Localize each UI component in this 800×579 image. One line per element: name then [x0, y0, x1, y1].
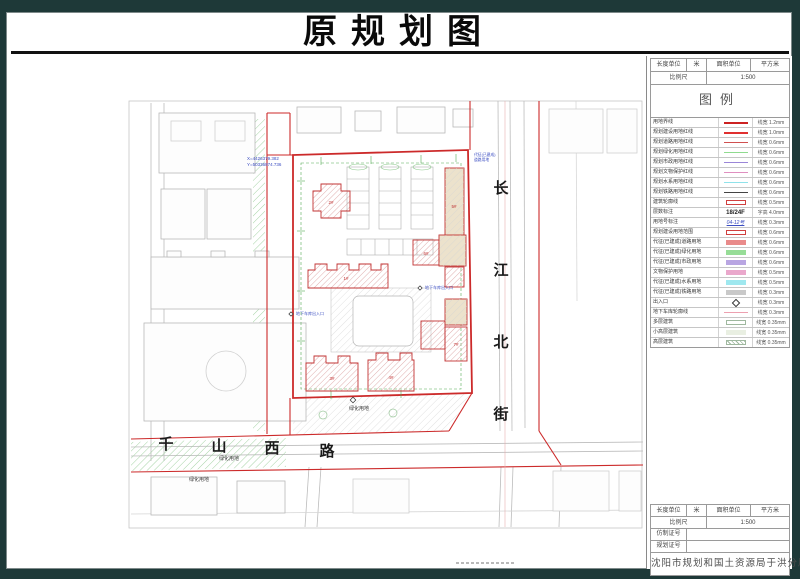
legend-row-label: 高层建筑 — [651, 338, 719, 347]
legend-row: 代征(已建成)市政用地线宽 0.6mm — [651, 258, 789, 268]
legend-symbol — [719, 148, 753, 157]
length-unit-label: 长度单位 — [651, 505, 687, 517]
cert2-label: 规划证号 — [651, 541, 687, 552]
legend-row-value: 线宽 0.6mm — [753, 229, 789, 236]
legend-row-value: 线宽 0.6mm — [753, 239, 789, 246]
street-char: 路 — [319, 442, 335, 460]
legend-row: 规划水系用地红线线宽 0.6mm — [651, 178, 789, 188]
area-unit-value: 平方米 — [751, 59, 789, 71]
legend-row-value: 线宽 1.0mm — [753, 129, 789, 136]
legend-row-value: 线宽 0.6mm — [753, 249, 789, 256]
legend-row-value: 线宽 0.35mm — [753, 329, 789, 336]
legend-row-label: 代征(已建成)道路用地 — [651, 238, 719, 247]
scale-label: 比例尺 — [651, 517, 707, 529]
legend-row: 用地界线线宽 1.2mm — [651, 118, 789, 128]
legend-row-label: 地下车库轮廓线 — [651, 308, 719, 317]
legend-symbol — [719, 288, 753, 297]
legend-row-label: 代征(已建成)绿化用地 — [651, 248, 719, 257]
legend-row: 代征(已建成)绿化用地线宽 0.6mm — [651, 248, 789, 258]
legend-row: 规划市政用地红线线宽 0.6mm — [651, 158, 789, 168]
legend-row: 规划建设用地红线线宽 1.0mm — [651, 128, 789, 138]
building-label: 2# — [328, 200, 334, 205]
street-char: 千 — [158, 436, 173, 453]
legend-symbol — [719, 248, 753, 257]
length-unit-value: 米 — [687, 505, 707, 517]
legend-rows: 用地界线线宽 1.2mm规划建设用地红线线宽 1.0mm规划道路用地红线线宽 0… — [651, 118, 789, 347]
legend-table: 长度单位 米 面积单位 平方米 比例尺 1:500 图例 用地界线线宽 1.2m… — [650, 58, 790, 348]
legend-symbol — [719, 138, 753, 147]
legend-symbol — [719, 268, 753, 277]
legend-row-value: 线宽 0.6mm — [753, 139, 789, 146]
cert1-row: 仿制证号 — [651, 529, 789, 541]
legend-row-value: 线宽 0.6mm — [753, 179, 789, 186]
green-space-label: 绿化用地 — [219, 455, 239, 462]
building-label: 5# — [451, 204, 457, 209]
scale-row: 比例尺 1:500 — [651, 72, 789, 85]
legend-row-value: 线宽 0.5mm — [753, 279, 789, 286]
building-label: 3# — [329, 376, 335, 381]
building-label: 6# — [423, 251, 429, 256]
legend-row-label: 规划铁路用地红线 — [651, 188, 719, 197]
units-header-row-bottom: 长度单位 米 面积单位 平方米 — [651, 505, 789, 517]
legend-row: 代征(已建成)水系用地线宽 0.5mm — [651, 278, 789, 288]
legend-symbol — [719, 328, 753, 337]
legend-symbol — [719, 118, 753, 127]
legend-symbol — [719, 228, 753, 237]
fine-print-note — [456, 562, 516, 564]
legend-row: 小高层建筑线宽 0.35mm — [651, 328, 789, 338]
legend-symbol — [719, 178, 753, 187]
legend-row-value: 线宽 1.2mm — [753, 119, 789, 126]
length-unit-value: 米 — [687, 59, 707, 71]
legend-row-label: 用地号标注 — [651, 218, 719, 227]
legend-row-label: 规划绿化用地红线 — [651, 148, 719, 157]
road-annotation: 道路用地 — [474, 157, 489, 162]
legend-symbol — [719, 128, 753, 137]
legend-row: 出入口线宽 0.3mm — [651, 298, 789, 308]
legend-row-value: 线宽 0.6mm — [753, 169, 789, 176]
legend-row: 规划建设用地范围线宽 0.6mm — [651, 228, 789, 238]
legend-symbol — [719, 338, 753, 347]
legend-row-label: 规划道路用地红线 — [651, 138, 719, 147]
legend-row-value: 线宽 0.3mm — [753, 219, 789, 226]
units-header-row: 长度单位 米 面积单位 平方米 — [651, 59, 789, 72]
legend-row-value: 字高 4.0mm — [753, 209, 789, 216]
legend-row-value: 线宽 0.35mm — [753, 319, 789, 326]
coordinate-x: X=4426379.382 — [247, 156, 279, 161]
legend-row: 层数标注18/24F字高 4.0mm — [651, 208, 789, 218]
legend-row-label: 规划文物保护红线 — [651, 168, 719, 177]
scale-value: 1:500 — [707, 517, 789, 529]
legend-row-label: 规划水系用地红线 — [651, 178, 719, 187]
legend-row: 规划铁路用地红线线宽 0.6mm — [651, 188, 789, 198]
area-unit-value: 平方米 — [751, 505, 789, 517]
legend-row: 代征(已建成)铁路用地线宽 0.3mm — [651, 288, 789, 298]
legend-row-value: 线宽 0.6mm — [753, 189, 789, 196]
street-char: 西 — [264, 440, 279, 457]
legend-symbol: 18/24F — [719, 208, 753, 217]
legend-symbol — [719, 188, 753, 197]
legend-row-label: 代征(已建成)市政用地 — [651, 258, 719, 267]
green-space-label: 绿化用地 — [349, 405, 369, 412]
street-char: 江 — [493, 261, 508, 279]
legend-symbol — [719, 278, 753, 287]
street-char: 山 — [211, 438, 226, 455]
legend-row-value: 线宽 0.5mm — [753, 199, 789, 206]
legend-symbol — [719, 158, 753, 167]
legend-row: 用地号标注04-12号线宽 0.3mm — [651, 218, 789, 228]
courtyard — [331, 288, 431, 352]
legend-row-label: 代征(已建成)水系用地 — [651, 278, 719, 287]
legend-row: 高层建筑线宽 0.35mm — [651, 338, 789, 347]
legend-row-label: 文物保护用地 — [651, 268, 719, 277]
legend-row-label: 代征(已建成)铁路用地 — [651, 288, 719, 297]
legend-row-label: 层数标注 — [651, 208, 719, 217]
site-plan-map: 2# 1# 3# 4# 5# 6# 7# X=4426379.382 Y=503… — [126, 97, 648, 545]
title-underline — [11, 51, 789, 54]
legend-row-value: 线宽 0.3mm — [753, 289, 789, 296]
legend-row-value: 线宽 0.5mm — [753, 269, 789, 276]
length-unit-label: 长度单位 — [651, 59, 687, 71]
green-space-label: 绿化用地 — [189, 476, 209, 483]
legend-row: 地下车库轮廓线线宽 0.3mm — [651, 308, 789, 318]
legend-symbol — [719, 308, 753, 317]
coordinate-y: Y=50336874.736 — [247, 162, 282, 167]
legend-symbol — [719, 168, 753, 177]
legend-symbol — [719, 258, 753, 267]
area-unit-label: 面积单位 — [707, 59, 751, 71]
drawing-sheet: 原规划图 — [6, 12, 792, 569]
legend-symbol: 04-12号 — [719, 218, 753, 227]
legend-row: 规划绿化用地红线线宽 0.6mm — [651, 148, 789, 158]
legend-row: 多层建筑线宽 0.35mm — [651, 318, 789, 328]
cert1-label: 仿制证号 — [651, 529, 687, 540]
legend-row-value: 线宽 0.35mm — [753, 339, 789, 346]
scale-label: 比例尺 — [651, 72, 707, 84]
legend-row: 规划文物保护红线线宽 0.6mm — [651, 168, 789, 178]
legend-symbol — [719, 238, 753, 247]
road-annotation: 代征(已建成) — [474, 152, 496, 157]
building-label: 7# — [453, 342, 459, 347]
area-unit-label: 面积单位 — [707, 505, 751, 517]
legend-row-label: 小高层建筑 — [651, 328, 719, 337]
scale-row-bottom: 比例尺 1:500 — [651, 517, 789, 529]
legend-row-label: 建筑轮廓线 — [651, 198, 719, 207]
legend-row-label: 规划建设用地范围 — [651, 228, 719, 237]
legend-symbol — [719, 198, 753, 207]
street-char: 街 — [492, 405, 508, 423]
building-label: 1# — [343, 276, 349, 281]
cert2-row: 规划证号 — [651, 541, 789, 553]
legend-panel: 长度单位 米 面积单位 平方米 比例尺 1:500 图例 用地界线线宽 1.2m… — [646, 56, 792, 569]
street-char: 长 — [493, 179, 509, 197]
legend-row-label: 用地界线 — [651, 118, 719, 127]
legend-row-value: 线宽 0.6mm — [753, 149, 789, 156]
legend-row: 建筑轮廓线线宽 0.5mm — [651, 198, 789, 208]
legend-row-value: 线宽 0.6mm — [753, 159, 789, 166]
legend-title: 图例 — [651, 85, 789, 118]
legend-row-value: 线宽 0.3mm — [753, 309, 789, 316]
scale-value: 1:500 — [707, 72, 789, 84]
legend-row-label: 出入口 — [651, 298, 719, 307]
street-char: 北 — [493, 334, 508, 351]
legend-row-label: 规划建设用地红线 — [651, 128, 719, 137]
garage-entry-label: 地下车库出入口 — [296, 310, 324, 316]
legend-row-label: 多层建筑 — [651, 318, 719, 327]
page-title: 原规划图 — [303, 12, 495, 52]
agency-name: 沈阳市规划和国土资源局于洪分局 — [651, 553, 789, 575]
legend-row: 代征(已建成)道路用地线宽 0.6mm — [651, 238, 789, 248]
street-name-changjiang-north: 长 江 北 街 — [492, 179, 509, 423]
legend-row: 文物保护用地线宽 0.5mm — [651, 268, 789, 278]
title-band: 原规划图 — [7, 13, 791, 50]
legend-row-value: 线宽 0.6mm — [753, 259, 789, 266]
building-label: 4# — [388, 375, 394, 380]
legend-symbol — [719, 318, 753, 327]
legend-row-value: 线宽 0.3mm — [753, 299, 789, 306]
title-block: 长度单位 米 面积单位 平方米 比例尺 1:500 仿制证号 规划证号 沈阳市规… — [650, 504, 790, 576]
legend-row-label: 规划市政用地红线 — [651, 158, 719, 167]
garage-entry-label: 地下车库出入口 — [425, 284, 453, 290]
legend-row: 规划道路用地红线线宽 0.6mm — [651, 138, 789, 148]
legend-symbol — [719, 298, 753, 307]
